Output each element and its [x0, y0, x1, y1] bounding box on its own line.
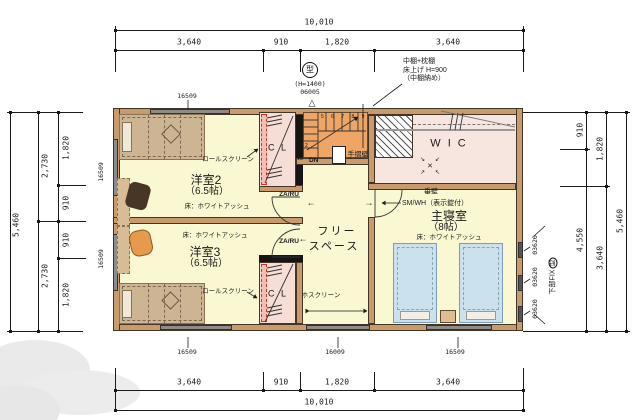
- window-code: 16009: [325, 348, 345, 356]
- room-name-master: 主寝室: [431, 210, 467, 222]
- dim-half: 2,730: [41, 264, 50, 288]
- door-code-label-1: ZA/RU: [279, 192, 299, 199]
- bed: [119, 283, 205, 324]
- door-code-label-2: ZA/RU: [279, 239, 299, 246]
- bed: [119, 114, 205, 160]
- floor-note-yoshitsu2: 床：ホワイトアッシュ: [185, 204, 250, 211]
- window-code: 03620: [531, 299, 539, 319]
- dim-seg: 3,640: [436, 38, 460, 47]
- dim-seg: 4,550: [576, 228, 585, 252]
- window-marker-icon: △: [309, 99, 316, 108]
- dim-half: 2,730: [41, 154, 50, 178]
- window-code: 16509: [177, 348, 197, 356]
- window-bottom-3: [426, 325, 492, 330]
- window-bottom-2: [306, 325, 370, 330]
- dim-seg: 1,820: [596, 137, 605, 161]
- shelf-note: 中棚+枕棚 床上げ H=900 （中棚納め）: [403, 58, 447, 84]
- dim-total-left: 5,460: [12, 213, 21, 237]
- handrail-notch: [332, 146, 346, 164]
- stair-number-13: 13: [297, 156, 303, 162]
- hanging-wall-label: 垂壁: [424, 189, 438, 196]
- window-code: 16509: [97, 162, 105, 182]
- roll-screen-label-1: ロールスクリーン: [202, 157, 254, 164]
- shelf-note-line2: 床上げ H=900: [403, 67, 447, 76]
- dim-seg: 910: [576, 123, 585, 137]
- stair-numbers-top: 5 6 7 8 9: [321, 114, 367, 120]
- room-name-free-space-1: フリー: [318, 227, 357, 238]
- pillow: [466, 311, 496, 320]
- dim-seg: 1,820: [62, 283, 71, 307]
- shelf-note-line1: 中棚+枕棚: [403, 58, 447, 67]
- master-door-label: SM/WH（表示錠付）: [402, 198, 468, 208]
- desk: [117, 226, 130, 274]
- glass-height-label: (H=1400): [294, 80, 325, 88]
- window-bottom-1: [160, 325, 232, 330]
- bed: [393, 243, 437, 323]
- roll-screen-label-2: ロールスクリーン: [202, 289, 254, 296]
- door-swing-arrow-icon: ←: [307, 199, 316, 208]
- pillow: [400, 311, 430, 320]
- dim-seg: 3,640: [436, 378, 460, 387]
- dim-seg: 3,640: [177, 38, 201, 47]
- floor-plan-drawing: 10,010 3,640 910 1,820 3,640 3,640 910 1…: [0, 0, 640, 420]
- dim-seg: 3,640: [177, 378, 201, 387]
- pillow: [122, 290, 132, 318]
- window-right-2: [518, 275, 523, 291]
- window-code: 16509: [97, 249, 105, 269]
- handrail-label: 手摺壁: [348, 152, 369, 159]
- room-name-wic: W I C: [430, 139, 468, 150]
- closet-label-1: C L: [268, 144, 288, 153]
- stair-number-2: 2: [305, 143, 308, 149]
- dim-seg: 3,640: [596, 246, 605, 270]
- inspection-hatch-icon: ↘ ↙ ↗ ↖ ×: [420, 156, 440, 176]
- dim-total-right: 5,460: [616, 209, 625, 233]
- dim-seg: 1,820: [62, 136, 71, 160]
- room-name-free-space-2: スペース: [309, 242, 360, 253]
- floor-note-yoshitsu3: 床：ホワイトアッシュ: [183, 233, 248, 240]
- dim-seg: 1,820: [325, 38, 349, 47]
- dim-seg: 910: [62, 196, 71, 210]
- fix-note-label: 下部FIX型: [549, 258, 558, 295]
- fix-note-text: 下部FIX: [550, 270, 557, 295]
- dim-total-top: 10,010: [305, 18, 334, 27]
- glass-type-label: 型: [306, 66, 314, 74]
- glass-code-label: 06005: [300, 88, 320, 96]
- room-name-yoshitsu3: 洋室3: [190, 246, 221, 258]
- bed: [459, 243, 503, 323]
- window-right-1: [518, 242, 523, 258]
- room-size-yoshitsu2: （6.5帖）: [185, 187, 229, 197]
- dim-seg: 1,820: [325, 378, 349, 387]
- room-name-yoshitsu2: 洋室2: [191, 174, 222, 186]
- fix-type-circled: 型: [549, 258, 558, 269]
- dim-seg: 910: [274, 378, 288, 387]
- closet-label-2: C L: [268, 290, 288, 299]
- dim-seg: 910: [274, 38, 288, 47]
- window-code: 16509: [177, 92, 197, 100]
- pillow: [122, 122, 132, 152]
- door-swing-arrow-icon: ←: [299, 235, 308, 244]
- room-size-yoshitsu3: （6.5帖）: [184, 259, 228, 269]
- nightstand: [440, 310, 456, 323]
- hoscreen-label: ホスクリーン: [302, 293, 341, 300]
- dim-total-bottom: 10,010: [305, 398, 334, 407]
- window-code: 16509: [445, 348, 465, 356]
- dim-seg: 910: [62, 233, 71, 247]
- floor-note-master: 床：ホワイトアッシュ: [417, 235, 482, 242]
- room-size-master: （8帖）: [428, 223, 464, 233]
- stair-dn-label: DN: [309, 157, 318, 164]
- shelf-note-line3: （中棚納め）: [403, 75, 447, 84]
- raised-floor-hatch: [375, 115, 413, 158]
- window-code: 03620: [531, 267, 539, 287]
- window-right-3: [518, 306, 523, 322]
- window-code: 03620: [531, 235, 539, 255]
- door-swing-arrow-icon: →: [365, 199, 374, 208]
